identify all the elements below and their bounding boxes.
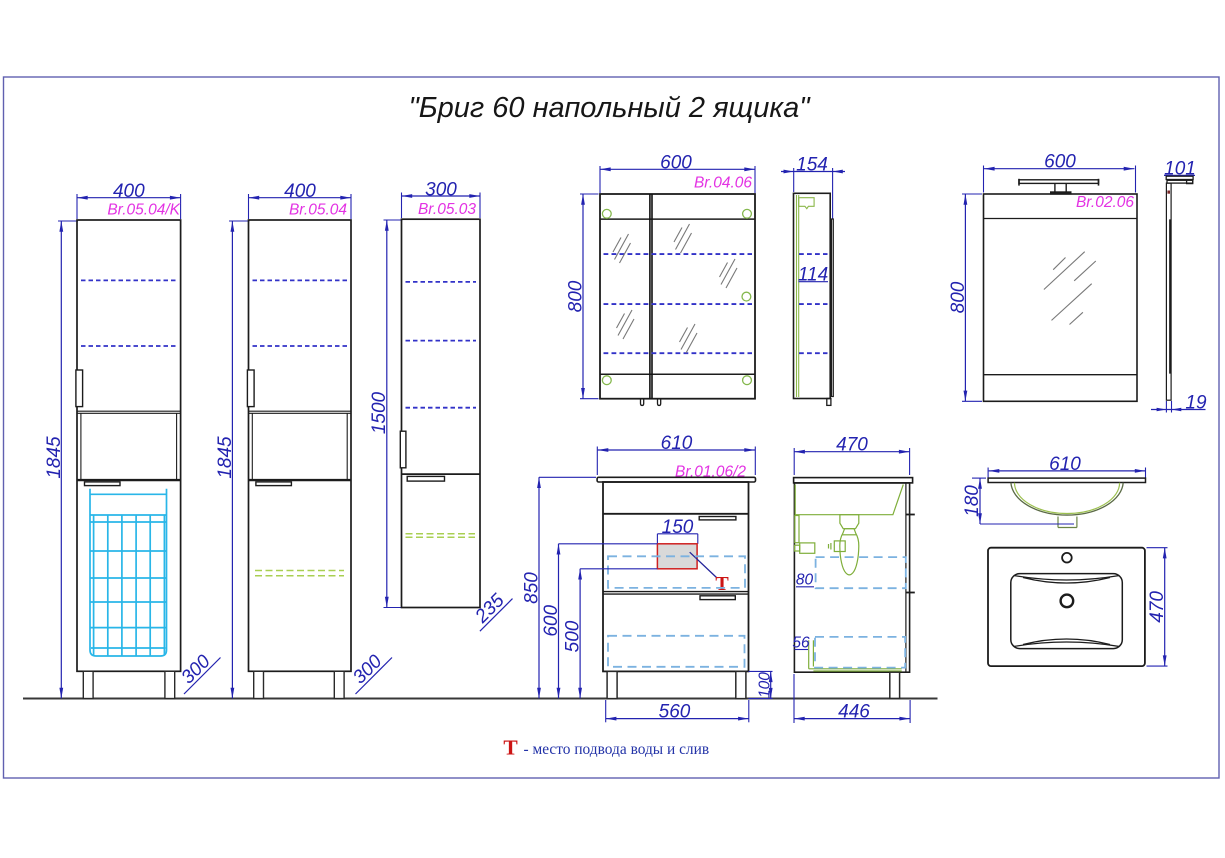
svg-text:500: 500 (563, 620, 584, 652)
svg-text:800: 800 (566, 280, 587, 312)
svg-text:560: 560 (659, 702, 691, 723)
svg-text:1500: 1500 (369, 391, 390, 434)
svg-text:400: 400 (113, 181, 145, 202)
svg-text:150: 150 (662, 517, 694, 538)
svg-text:Br.05.04/K: Br.05.04/K (107, 202, 180, 219)
svg-text:446: 446 (838, 702, 870, 723)
svg-text:114: 114 (798, 265, 828, 286)
svg-text:- место подвода воды и слив: - место подвода воды и слив (524, 741, 710, 758)
svg-text:1845: 1845 (44, 436, 65, 479)
svg-text:400: 400 (284, 181, 316, 202)
svg-text:Т: Т (503, 736, 518, 760)
svg-text:154: 154 (796, 155, 828, 176)
svg-text:800: 800 (948, 281, 969, 313)
svg-text:80: 80 (796, 572, 814, 589)
svg-text:600: 600 (541, 605, 562, 637)
svg-text:1845: 1845 (215, 436, 236, 479)
svg-text:100: 100 (756, 672, 773, 698)
svg-text:610: 610 (661, 433, 693, 454)
svg-text:470: 470 (1147, 591, 1168, 623)
svg-text:Br.05.03: Br.05.03 (418, 201, 476, 218)
svg-text:300: 300 (425, 179, 457, 200)
svg-text:600: 600 (660, 152, 692, 173)
svg-text:180: 180 (962, 485, 983, 517)
svg-text:610: 610 (1049, 454, 1081, 475)
svg-text:19: 19 (1185, 393, 1207, 414)
svg-text:470: 470 (836, 435, 868, 456)
svg-text:600: 600 (1044, 152, 1076, 173)
svg-text:850: 850 (522, 572, 543, 604)
svg-text:"Бриг 60 напольный 2 ящика": "Бриг 60 напольный 2 ящика" (408, 92, 811, 124)
svg-text:Br.04.06: Br.04.06 (694, 175, 752, 192)
svg-text:Br.02.06: Br.02.06 (1076, 194, 1134, 211)
svg-text:Br.05.04: Br.05.04 (289, 202, 347, 219)
